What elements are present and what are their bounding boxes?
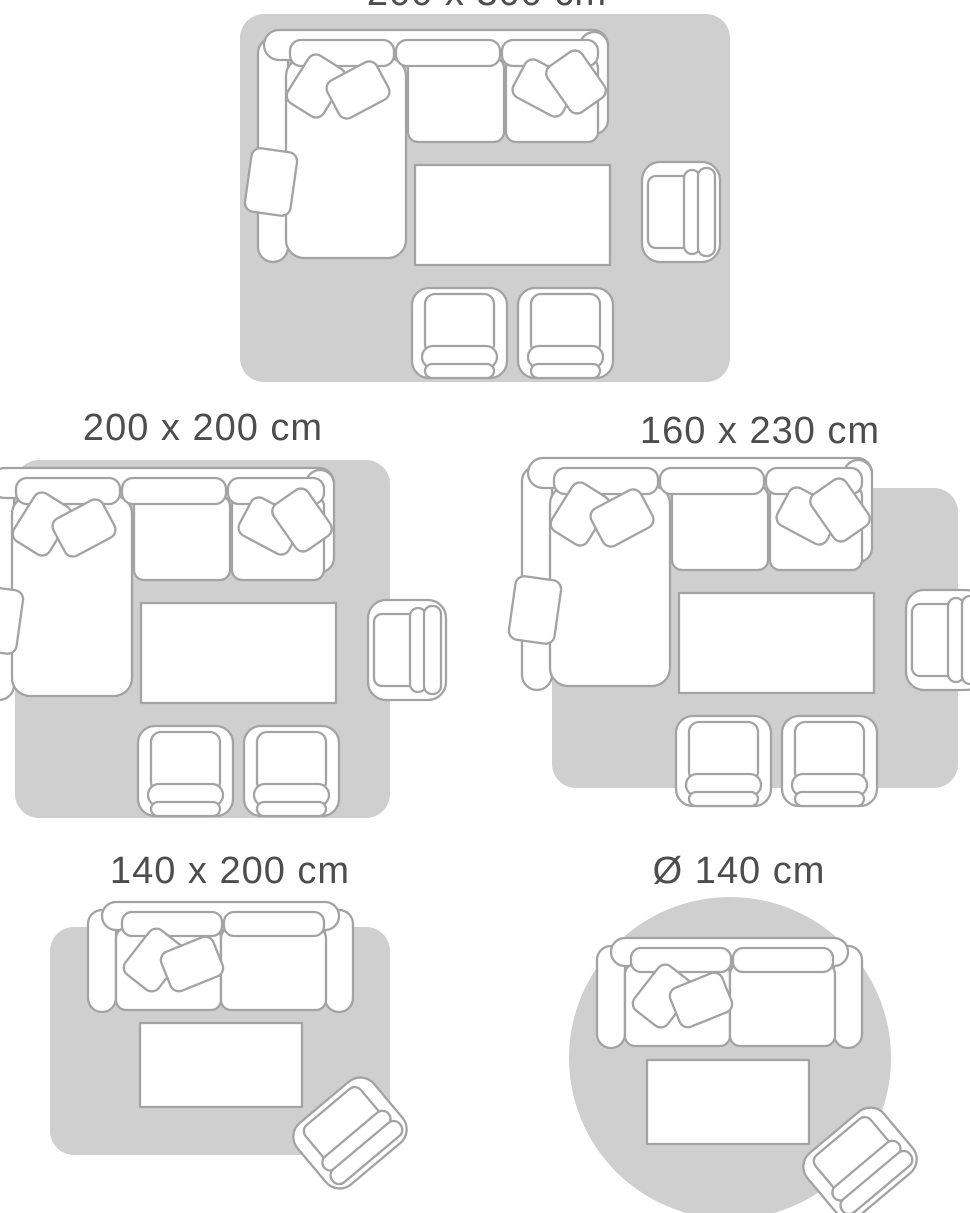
loveseat-sofa-icon [597, 938, 862, 1048]
size-label-200x200: 200 x 200 cm [83, 408, 323, 448]
rug-scene-160x230 [505, 456, 970, 808]
rug-scene-140x200 [30, 895, 470, 1213]
rug-size-guide: 200 x 300 cm 200 x 200 cm 160 x 230 cm 1… [0, 0, 970, 1213]
loveseat-sofa-icon [88, 902, 353, 1012]
size-label-160x230: 160 x 230 cm [640, 411, 880, 451]
rug-scene-d140 [530, 895, 970, 1213]
size-label-200x300: 200 x 300 cm [367, 0, 607, 13]
rug-scene-200x300 [240, 14, 730, 382]
coffee-table-icon [647, 1060, 809, 1144]
rug-scene-200x200 [0, 458, 448, 820]
size-label-d140: Ø 140 cm [653, 851, 826, 891]
coffee-table-icon [140, 1023, 302, 1107]
size-label-140x200: 140 x 200 cm [110, 851, 350, 891]
